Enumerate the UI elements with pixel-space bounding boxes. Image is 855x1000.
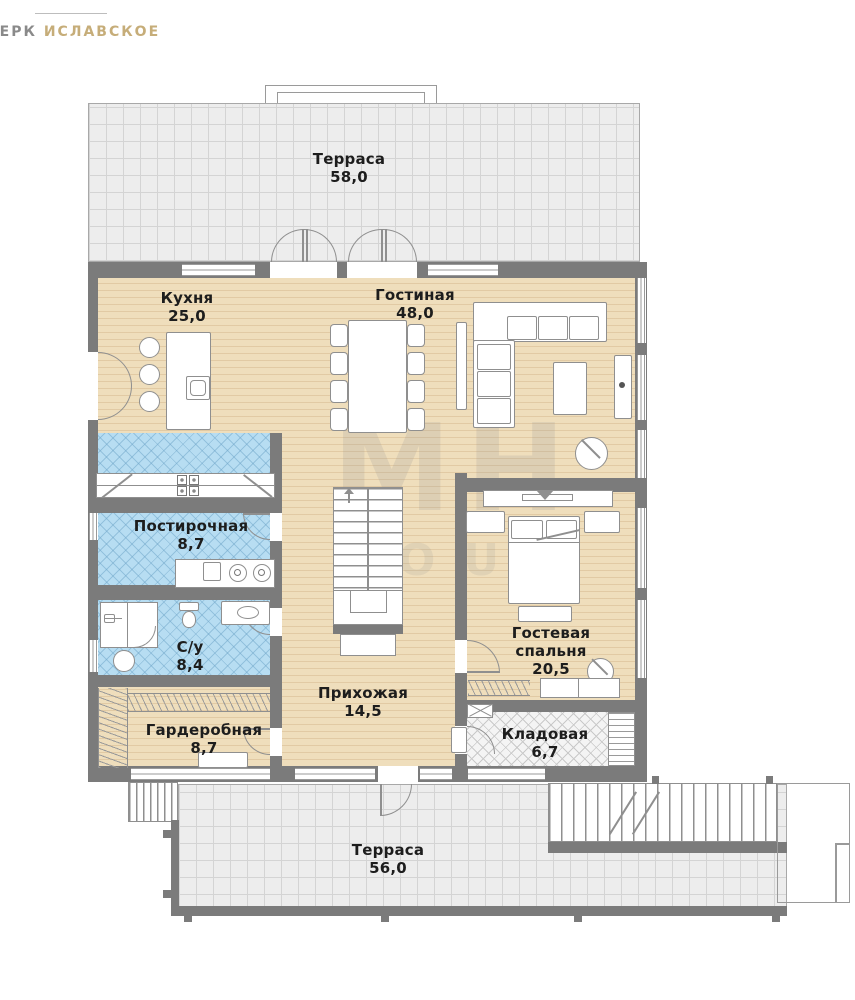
window bbox=[182, 264, 255, 276]
bar-stool bbox=[139, 391, 160, 412]
sofa-cushion bbox=[477, 398, 511, 424]
stove-burner bbox=[189, 486, 199, 496]
terrace-post bbox=[574, 914, 582, 922]
armchair bbox=[575, 437, 608, 470]
room-label-kitchen: Кухня 25,0 bbox=[161, 289, 214, 325]
dining-chair bbox=[330, 324, 348, 347]
stove-burner bbox=[177, 486, 187, 496]
storage-shelf bbox=[608, 712, 635, 766]
sofa-cushion bbox=[538, 316, 568, 340]
window bbox=[420, 768, 452, 780]
door-opening bbox=[347, 262, 417, 278]
terrace-right-retaining-wall bbox=[548, 842, 787, 853]
stair-landing-inner bbox=[350, 590, 387, 613]
terrace-left-stair bbox=[128, 782, 178, 822]
washing-machine bbox=[229, 564, 247, 582]
window bbox=[637, 430, 646, 478]
window bbox=[468, 768, 545, 780]
door-opening bbox=[270, 513, 282, 541]
room-label-storage: Кладовая 6,7 bbox=[502, 725, 589, 761]
stair-flight-left bbox=[333, 487, 368, 592]
terrace-left-border bbox=[171, 820, 179, 913]
room-label-terrace-bottom: Терраса 56,0 bbox=[352, 841, 424, 877]
dining-chair bbox=[330, 380, 348, 403]
toilet-bowl bbox=[182, 611, 196, 628]
door-opening bbox=[378, 766, 418, 782]
dining-chair bbox=[407, 324, 425, 347]
terrace-post bbox=[163, 830, 171, 838]
window bbox=[295, 768, 375, 780]
nightstand bbox=[466, 511, 505, 533]
door-opening bbox=[455, 640, 467, 673]
shower-head-stem bbox=[104, 618, 122, 619]
floor-plan: ВЕРК ИСЛАВСКОЕ МН OUP bbox=[0, 0, 855, 1000]
stove-burner bbox=[189, 475, 199, 485]
dryer-machine bbox=[253, 564, 271, 582]
door-leaf bbox=[381, 229, 383, 262]
bar-stool bbox=[139, 337, 160, 358]
stair-direction-arrow-head bbox=[344, 488, 354, 494]
dresser-divider bbox=[578, 678, 579, 698]
door-leaf bbox=[451, 727, 467, 753]
terrace-post bbox=[163, 890, 171, 898]
wall-kitchenzone-laundry bbox=[96, 498, 282, 513]
terrace-post bbox=[184, 914, 192, 922]
dining-chair bbox=[330, 408, 348, 431]
door-opening bbox=[88, 352, 98, 420]
room-label-living-room: Гостиная 48,0 bbox=[375, 286, 455, 322]
wardrobe-chevron bbox=[536, 490, 554, 500]
dining-chair bbox=[407, 352, 425, 375]
nightstand bbox=[584, 511, 620, 533]
exterior-stair-right bbox=[548, 783, 777, 842]
porch-step-line bbox=[835, 843, 837, 903]
window bbox=[428, 264, 498, 276]
stove-burner bbox=[177, 475, 187, 485]
room-label-terrace-top: Терраса 58,0 bbox=[313, 150, 385, 186]
window bbox=[89, 513, 98, 540]
logo-divider bbox=[35, 13, 107, 14]
window bbox=[637, 508, 646, 588]
pillow bbox=[511, 520, 543, 539]
terrace-post bbox=[381, 914, 389, 922]
laundry-sink bbox=[203, 562, 221, 581]
sideboard bbox=[456, 322, 467, 410]
room-label-bathroom: С/у 8,4 bbox=[176, 638, 203, 674]
window bbox=[89, 640, 98, 672]
door-leaf bbox=[385, 229, 387, 262]
bed-bench bbox=[518, 606, 572, 622]
stair-flight-right bbox=[368, 487, 403, 592]
washer-drum bbox=[234, 569, 241, 576]
window bbox=[637, 278, 646, 343]
dining-chair bbox=[407, 380, 425, 403]
door-leaf bbox=[467, 671, 500, 673]
room-label-wardrobe: Гардеробная 8,7 bbox=[146, 721, 263, 757]
wardrobe-rack-top bbox=[128, 693, 270, 712]
door-leaf bbox=[302, 229, 304, 262]
wardrobe-rack-left bbox=[98, 688, 128, 768]
window bbox=[637, 600, 646, 678]
room-label-guest-bedroom: Гостевая спальня 20,5 bbox=[512, 624, 590, 678]
blanket-line bbox=[508, 542, 580, 543]
bedroom-rack bbox=[468, 680, 530, 696]
logo-location: ИСЛАВСКОЕ bbox=[44, 24, 160, 40]
coffee-table bbox=[553, 362, 587, 415]
entry-mat bbox=[340, 634, 396, 656]
bedroom-dresser bbox=[540, 678, 620, 698]
window bbox=[131, 768, 270, 780]
tv-knob bbox=[619, 382, 625, 388]
kitchen-sink-basin bbox=[190, 380, 206, 396]
door-leaf bbox=[306, 229, 308, 262]
toilet-tank bbox=[179, 602, 199, 611]
stair-rail-post bbox=[652, 776, 659, 784]
wall-bathroom-wardrobe bbox=[96, 675, 282, 687]
stair-rail-post bbox=[766, 776, 773, 784]
terrace-bottom-border bbox=[171, 906, 787, 916]
window bbox=[637, 355, 646, 420]
door-opening bbox=[270, 728, 282, 756]
brand-logo: ВЕРК ИСЛАВСКОЕ bbox=[0, 24, 160, 40]
dining-table bbox=[348, 320, 407, 433]
sofa-cushion bbox=[507, 316, 537, 340]
dryer-drum bbox=[258, 569, 265, 576]
porch-step-line bbox=[835, 843, 850, 845]
laundry-basket bbox=[113, 650, 135, 672]
room-label-hallway: Прихожая 14,5 bbox=[318, 684, 408, 720]
shower-divider bbox=[127, 602, 128, 648]
bar-stool bbox=[139, 364, 160, 385]
sofa-cushion bbox=[477, 371, 511, 397]
room-label-laundry: Постирочная 8,7 bbox=[134, 517, 249, 553]
dining-chair bbox=[407, 408, 425, 431]
terrace-post bbox=[772, 914, 780, 922]
door-opening bbox=[270, 262, 337, 278]
washbasin-bowl bbox=[237, 606, 259, 619]
door-opening bbox=[270, 608, 282, 636]
logo-brand: ВЕРК bbox=[0, 24, 37, 40]
sofa-cushion bbox=[477, 344, 511, 370]
dining-chair bbox=[330, 352, 348, 375]
stair-base bbox=[333, 625, 403, 634]
sofa-cushion bbox=[569, 316, 599, 340]
